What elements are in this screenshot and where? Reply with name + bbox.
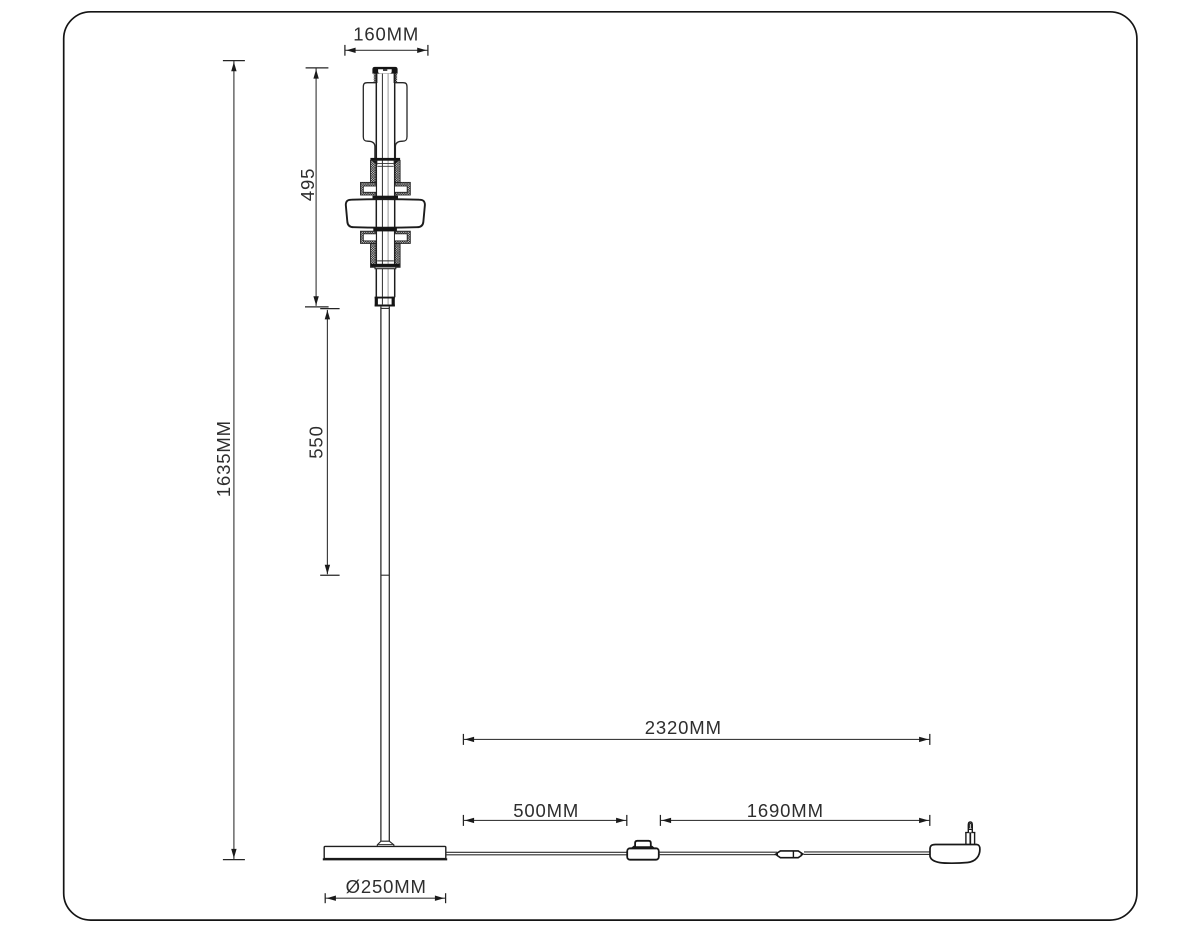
svg-text:Ø250MM: Ø250MM: [346, 876, 427, 897]
svg-text:495: 495: [297, 168, 318, 201]
svg-text:550: 550: [305, 425, 326, 458]
svg-text:500MM: 500MM: [513, 800, 579, 821]
svg-text:1690MM: 1690MM: [747, 800, 824, 821]
svg-text:2320MM: 2320MM: [645, 717, 722, 738]
svg-text:1635MM: 1635MM: [213, 420, 234, 497]
svg-text:160MM: 160MM: [353, 24, 419, 45]
